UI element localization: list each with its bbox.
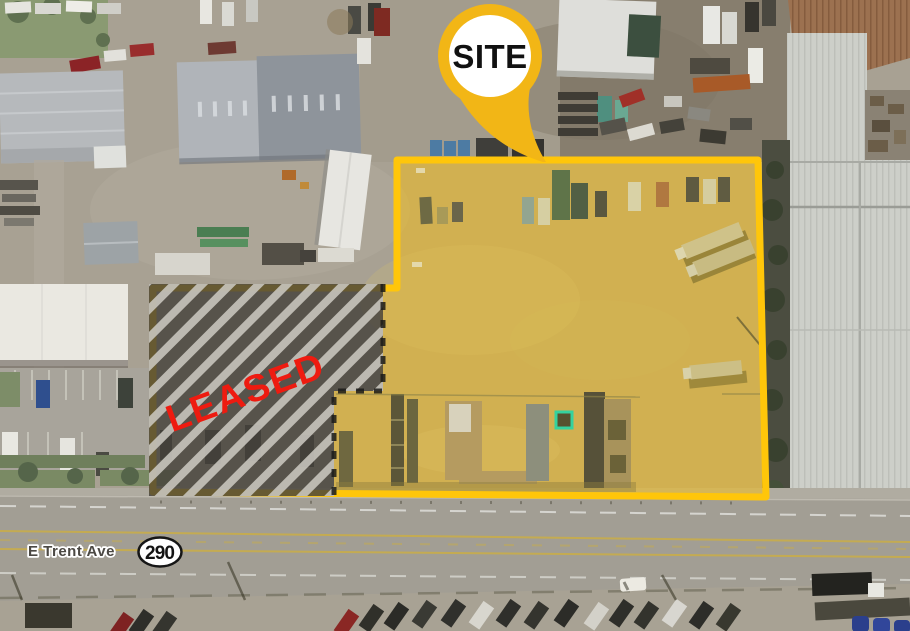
building-warehouse-north-central bbox=[177, 54, 362, 165]
survey-marker bbox=[556, 412, 572, 428]
site-callout-label: SITE bbox=[452, 38, 527, 75]
building-white-west bbox=[0, 284, 128, 368]
route-shield-290: 290 bbox=[139, 538, 182, 567]
road-name-label: E Trent Ave bbox=[28, 543, 115, 560]
shed-white bbox=[94, 145, 127, 168]
road-e-trent-ave bbox=[0, 488, 910, 631]
shed-grey bbox=[83, 221, 138, 265]
route-number: 290 bbox=[145, 543, 175, 564]
aerial-site-map: LEASED E Trent Ave 290 SITE bbox=[0, 0, 910, 631]
